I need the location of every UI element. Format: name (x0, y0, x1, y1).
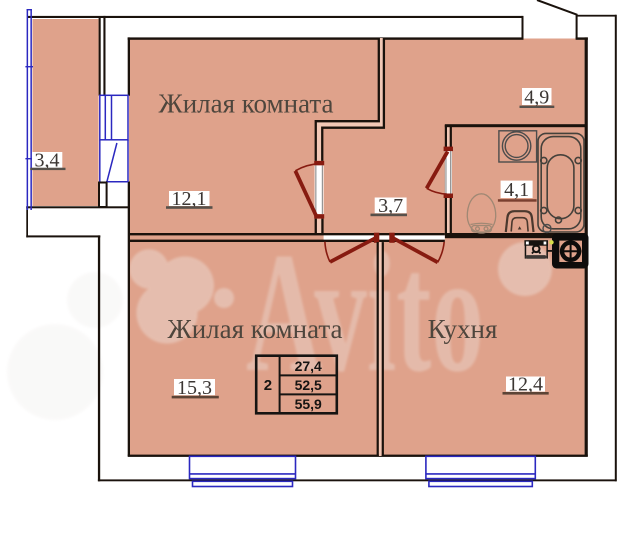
svg-text:2: 2 (264, 377, 272, 394)
svg-text:55,9: 55,9 (295, 396, 322, 412)
svg-text:Кухня: Кухня (428, 314, 498, 344)
svg-text:15,3: 15,3 (177, 377, 212, 399)
svg-text:52,5: 52,5 (295, 377, 322, 393)
svg-text:4,9: 4,9 (524, 86, 549, 108)
svg-text:Жилая комната: Жилая комната (159, 89, 334, 119)
svg-text:27,4: 27,4 (295, 358, 322, 374)
svg-text:Жилая комната: Жилая комната (168, 314, 343, 344)
svg-text:4,1: 4,1 (504, 179, 529, 201)
svg-text:3,7: 3,7 (378, 195, 403, 217)
